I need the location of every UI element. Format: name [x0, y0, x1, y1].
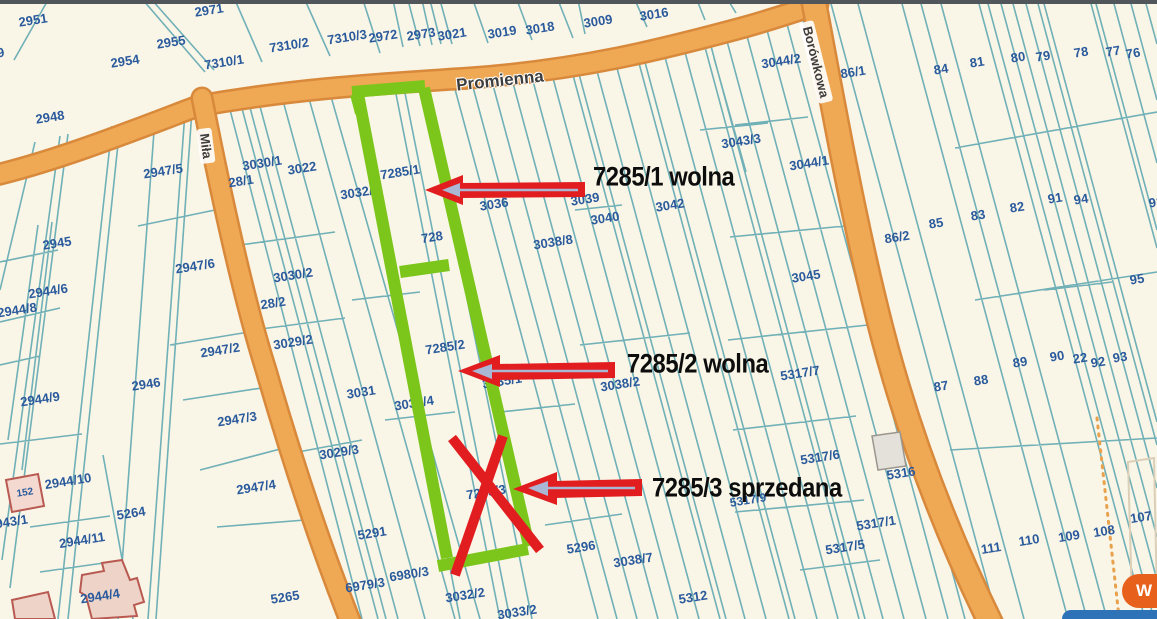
cadastral-map[interactable]: 29512971295529544929487310/17310/27310/3… [0, 0, 1157, 619]
chat-widget-button[interactable]: W [1122, 574, 1157, 608]
bottom-widget-bar[interactable] [1062, 610, 1157, 619]
top-edge-bar [0, 0, 1157, 4]
chat-widget-label: W [1136, 581, 1152, 601]
annotation-text-layer: 7285/1 wolna7285/2 wolna7285/3 sprzedana [0, 0, 1157, 619]
status-annotation: 7285/1 wolna [593, 162, 734, 193]
status-annotation: 7285/2 wolna [627, 349, 768, 380]
status-annotation: 7285/3 sprzedana [652, 473, 842, 504]
